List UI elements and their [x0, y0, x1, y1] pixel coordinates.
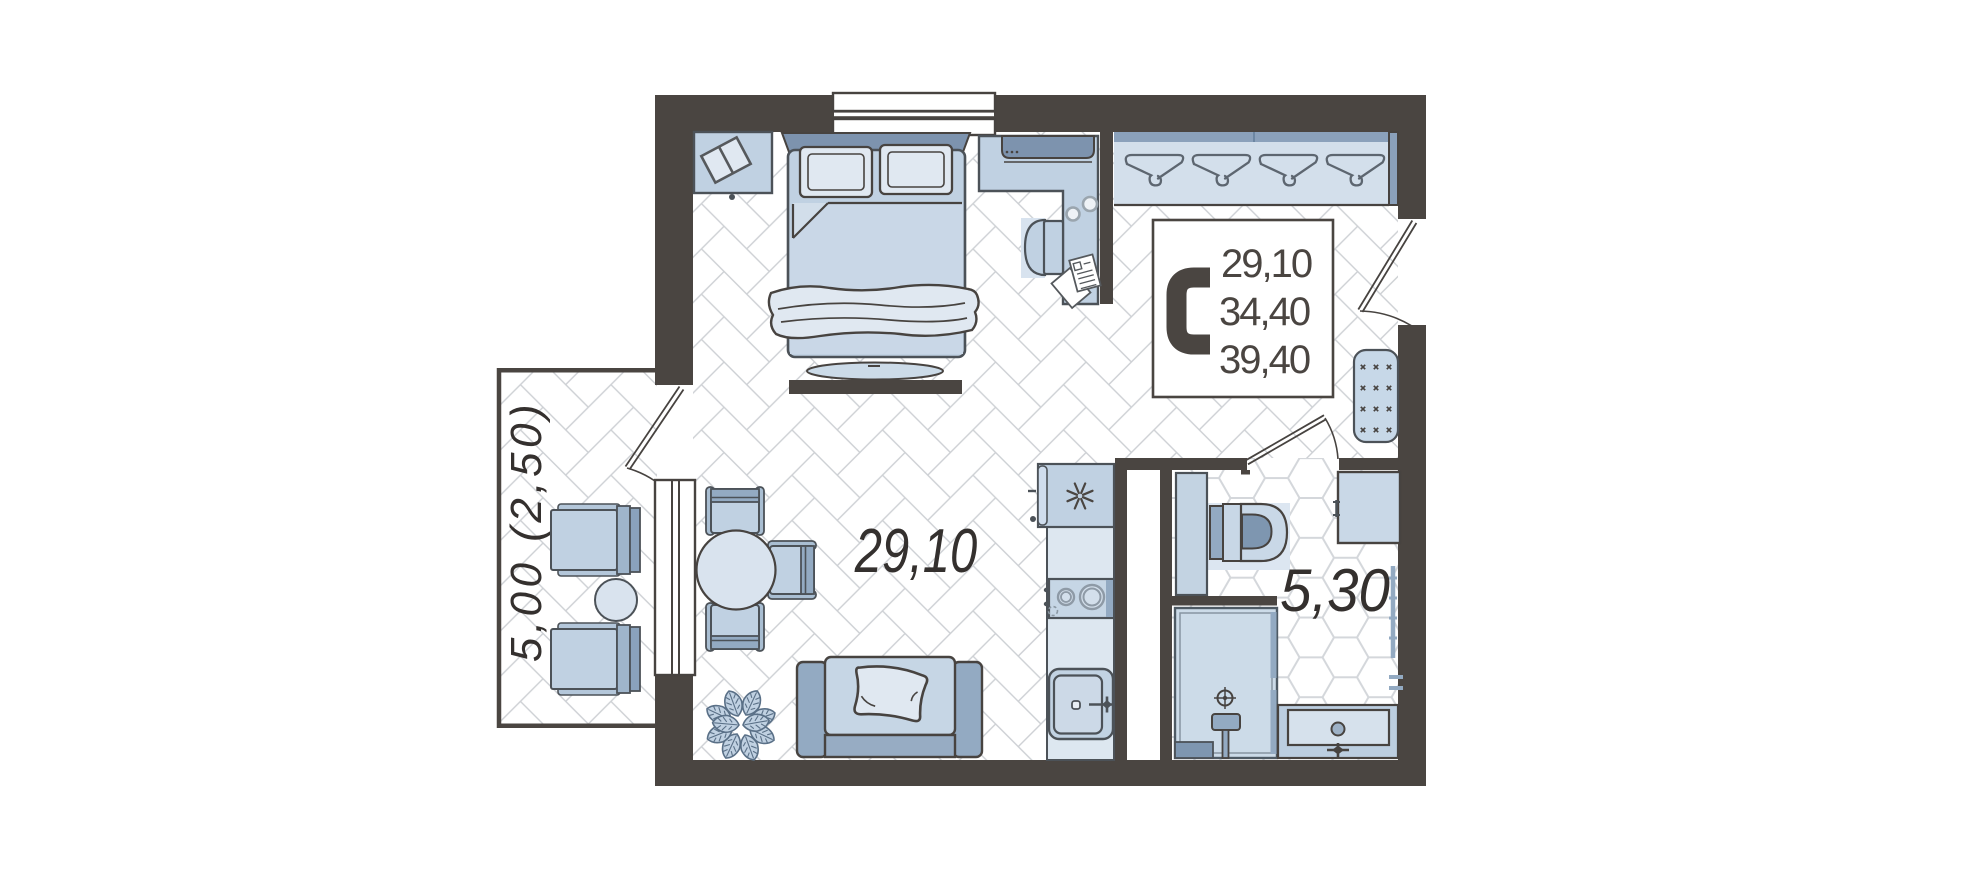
- svg-text:5,00 (2,50): 5,00 (2,50): [502, 400, 551, 662]
- svg-text:5,30: 5,30: [1280, 557, 1390, 624]
- svg-text:39,40: 39,40: [1219, 338, 1310, 382]
- svg-text:34,40: 34,40: [1219, 290, 1310, 334]
- svg-text:29,10: 29,10: [854, 515, 977, 585]
- svg-text:29,10: 29,10: [1221, 242, 1312, 286]
